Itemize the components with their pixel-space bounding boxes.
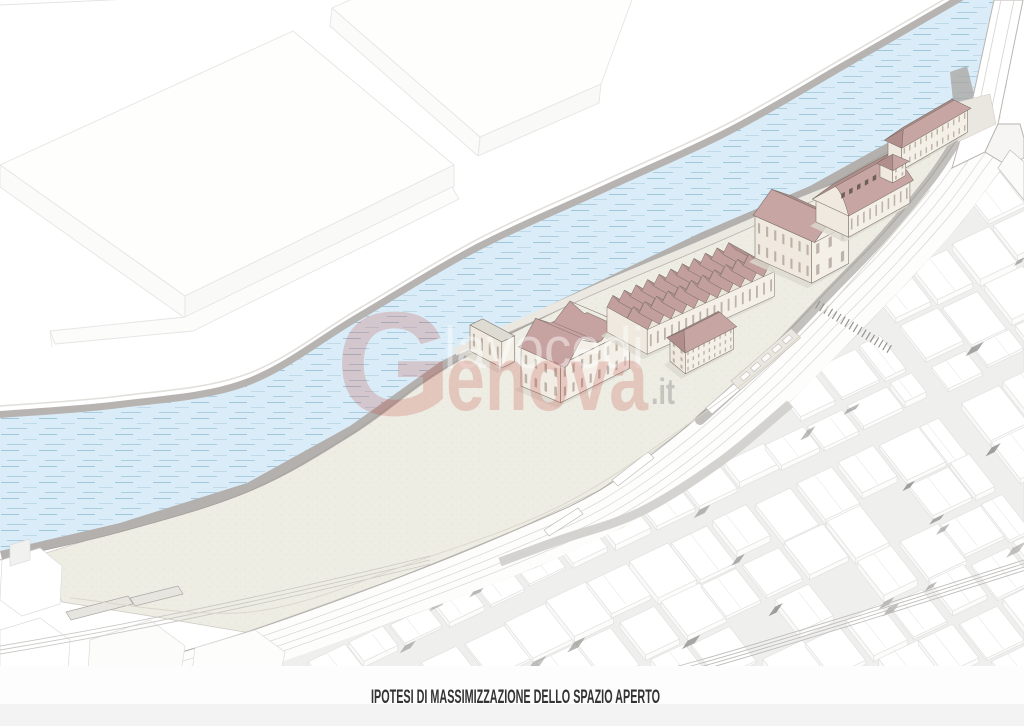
svg-text:.it: .it [651, 371, 675, 412]
svg-text:IPOTESI DI MASSIMIZZAZIONE DEL: IPOTESI DI MASSIMIZZAZIONE DELLO SPAZIO … [371, 687, 660, 708]
svg-text:enova: enova [446, 328, 649, 430]
svg-text:G: G [336, 282, 452, 447]
